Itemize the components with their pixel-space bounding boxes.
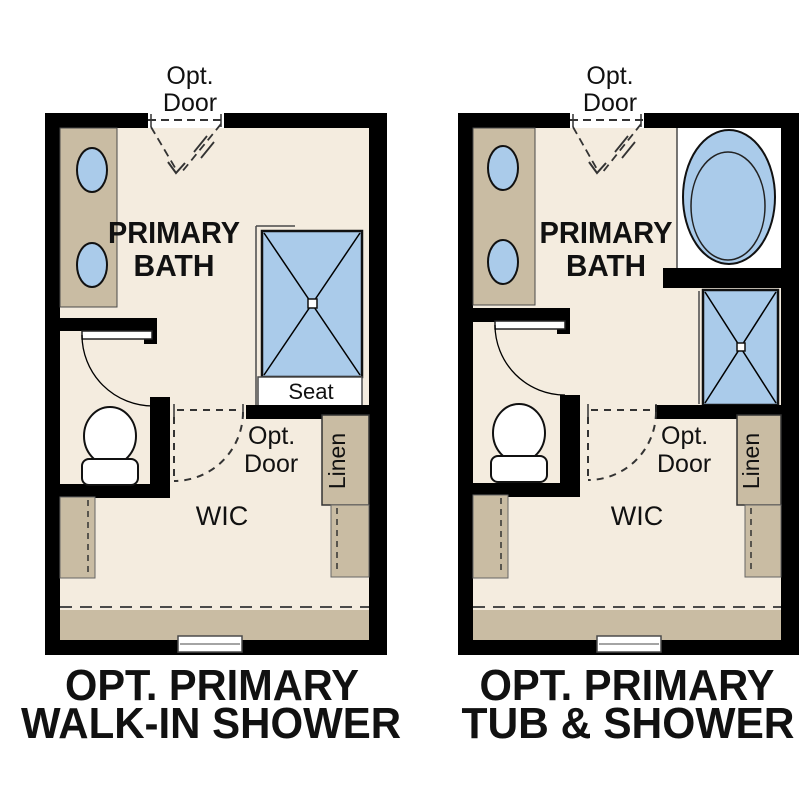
opt-door-label-line1: Opt.: [586, 62, 633, 90]
opt-door-label-line1: Opt.: [166, 62, 213, 90]
wic-label: WIC: [196, 501, 248, 531]
shower-drain: [308, 299, 317, 308]
toilet-room-wall-bottom: [60, 484, 170, 498]
closet-shelf: [60, 497, 95, 578]
wall-right: [781, 113, 799, 655]
linen-label: Linen: [738, 433, 764, 489]
wall-right: [369, 113, 387, 655]
shower-drain: [737, 343, 745, 351]
door-leaf-icon: [82, 331, 152, 339]
tub-outer: [683, 130, 775, 264]
threshold-icon: [597, 636, 661, 652]
plan-tub-shower: Opt. Door PRIMARY BATH: [458, 62, 799, 748]
toilet-icon: [84, 407, 136, 465]
floorplan-page: Opt. Door PRIMARY BATH Seat: [0, 0, 810, 810]
wall-left: [458, 113, 473, 655]
sink-icon: [488, 146, 518, 190]
sink-icon: [77, 148, 107, 192]
caption-line2: WALK-IN SHOWER: [21, 699, 401, 748]
caption-line2: TUB & SHOWER: [462, 699, 795, 748]
floorplan-canvas: Opt. Door PRIMARY BATH Seat: [0, 0, 810, 810]
toilet-icon: [493, 404, 545, 462]
toilet-room-wall-top: [60, 318, 157, 331]
toilet-tank: [491, 456, 547, 482]
sink-icon: [77, 243, 107, 287]
tub-icon: [677, 128, 781, 268]
room-label-bath: BATH: [134, 248, 215, 283]
shower-icon: [699, 290, 778, 405]
opt-door-label-line2: Door: [583, 89, 637, 117]
room-label-primary: PRIMARY: [540, 215, 673, 250]
room-label-bath: BATH: [566, 248, 646, 283]
opt-door-label-line1: Opt.: [661, 422, 708, 450]
wic-label: WIC: [611, 501, 663, 531]
room-label-primary: PRIMARY: [108, 215, 240, 250]
wall-under-tub: [663, 268, 781, 288]
threshold-icon: [178, 636, 242, 652]
shower-icon: Seat: [256, 226, 362, 406]
plan-walk-in-shower: Opt. Door PRIMARY BATH Seat: [21, 62, 401, 748]
sink-icon: [488, 240, 518, 284]
closet-shelf: [473, 495, 508, 578]
opt-door-label-line2: Door: [244, 450, 298, 478]
seat-label: Seat: [288, 379, 333, 404]
wall-left: [45, 113, 60, 655]
door-leaf-icon: [495, 321, 565, 329]
opt-door-label-line2: Door: [163, 89, 217, 117]
toilet-room-wall-right: [150, 397, 170, 497]
opt-door-label-line2: Door: [657, 450, 711, 478]
toilet-room-wall-right: [560, 395, 580, 497]
toilet-tank: [82, 459, 138, 485]
linen-label: Linen: [324, 433, 350, 489]
opt-door-label-line1: Opt.: [248, 422, 295, 450]
toilet-room-wall-top: [473, 308, 570, 322]
